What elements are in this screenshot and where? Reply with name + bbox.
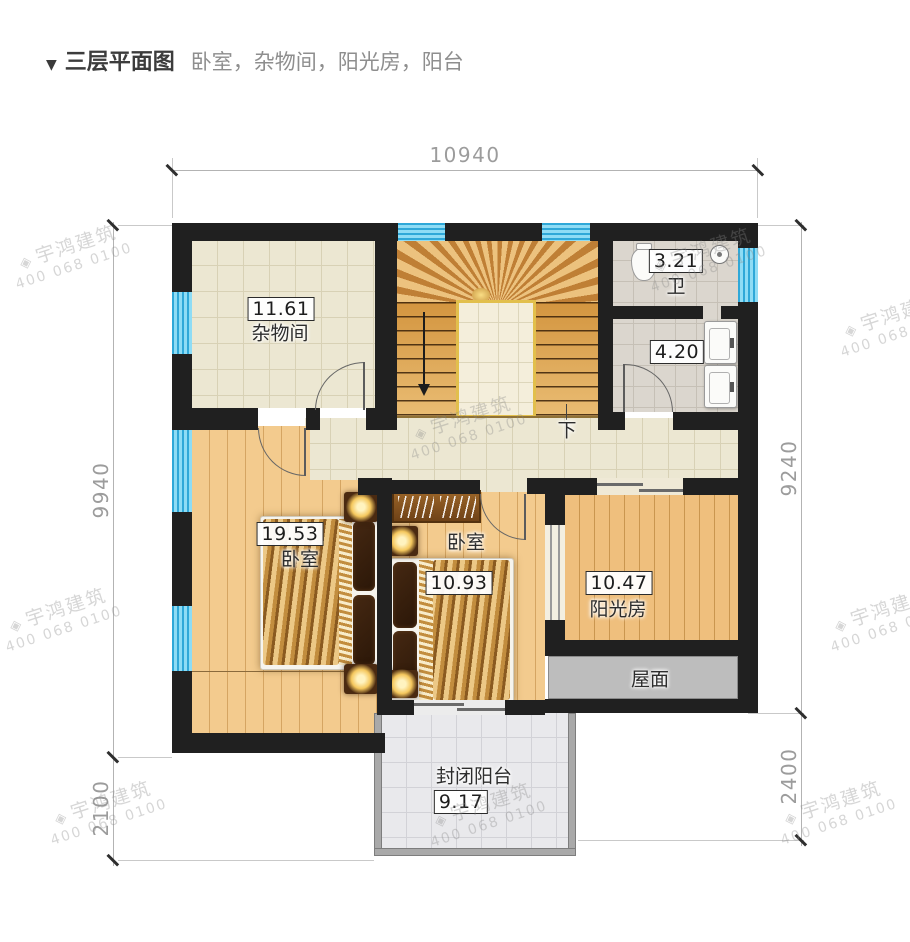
wall-between-bedrooms [377,480,392,715]
extension-line [748,713,804,714]
sink-icon [704,365,737,408]
dimension-right-lower-value: 2400 [777,748,801,805]
wall-exterior-bottom-right [545,699,758,713]
room-name-bedroom-left: 卧室 [281,545,319,572]
window-top-2 [542,223,590,241]
wall-washroom-bottom-right [673,412,758,430]
watermark-logo-icon [6,610,29,636]
door-leaf-bedroom-left [304,428,306,476]
wall-storage-bottom-right [366,408,397,430]
dimension-line-left [113,222,114,866]
watermark: 宇鸿建筑 400 068 0100 [738,760,910,860]
bed-left-pillow [353,521,375,591]
watermark-phone: 400 068 0100 [796,592,910,666]
wall-sunroom-left-upper [545,478,565,525]
wall-bathroom-left [598,240,613,412]
opening-jamb-line [558,525,560,620]
sink-basin [709,372,730,404]
watermark: 宇鸿建筑 400 068 0100 [788,567,910,667]
title-subtitle: 卧室，杂物间，阳光房，阳台 [191,46,464,76]
room-name-storage: 杂物间 [251,319,308,346]
wall-washroom-bottom-left [598,412,625,430]
sliding-door-gap-sunroom [597,478,683,495]
dimension-line-right [801,222,802,846]
title-heading: 三层平面图 [65,44,175,76]
floor-plan-canvas: ▼ 三层平面图 卧室，杂物间，阳光房，阳台 下 [0,0,910,942]
watermark-brand: 宇鸿建筑 [798,777,885,824]
wall-storage-bottom [172,408,258,430]
extension-line [118,860,374,861]
room-name-roof: 屋面 [631,665,669,692]
watermark-brand: 宇鸿建筑 [858,289,910,336]
area-label-bedroom-mid: 10.93 [426,571,493,595]
floor-drain-dot [717,252,722,257]
bed-left-pillow [353,595,375,665]
extension-line [172,158,173,218]
nightstand-lamp [346,492,376,522]
watermark: 宇鸿建筑 400 068 0100 [0,567,157,667]
wall-sunroom-bottom [545,640,758,656]
balcony-frame-bottom [374,848,576,856]
bed-left-fold [339,519,352,665]
watermark-logo-icon [831,610,854,636]
watermark-logo-icon [841,315,864,341]
watermark-phone: 400 068 0100 [746,785,910,859]
wall-bedroom-mid-bottom-left [377,700,414,715]
stairs-down-label: 下 [557,416,576,443]
dimension-top-value: 10940 [429,143,500,167]
wall-bathroom-divider [613,306,703,319]
door-leaf-storage [363,362,365,410]
watermark-phone: 400 068 0100 [0,229,167,303]
stairs-flight-right [536,302,598,418]
page-title: ▼ 三层平面图 卧室，杂物间，阳光房，阳台 [46,44,464,76]
watermark-brand: 宇鸿建筑 [23,584,110,631]
door-leaf-washroom [623,364,625,412]
sliding-door-panel [639,489,683,492]
extension-line [578,840,804,841]
dimension-right-upper-value: 9240 [777,440,801,497]
area-label-bathroom: 3.21 [649,249,703,273]
extension-line [118,225,172,226]
wardrobe-hangers-icon [398,496,434,518]
window-left-bedroom-2 [172,606,192,671]
wall-storage-bottom-stub [306,408,320,430]
extension-line [758,225,804,226]
wall-sunroom-top-right [683,478,738,495]
area-label-storage: 11.61 [248,297,315,321]
stairs-arrow-head-icon [418,384,430,396]
room-name-bathroom: 卫 [666,272,685,299]
dimension-left-lower-value: 2100 [89,780,113,837]
window-left-storage [172,292,192,354]
watermark: 宇鸿建筑 400 068 0100 [798,272,910,372]
wall-storage-right [375,240,397,430]
watermark-phone: 400 068 0100 [806,297,910,371]
wall-bedroom-mid-top-stub [527,478,545,494]
stairs-winders [397,240,598,302]
stairs-flight-left [397,302,456,418]
area-label-washroom: 4.20 [650,340,704,364]
area-label-balcony: 9.17 [434,790,488,814]
wall-bedroom-mid-bottom-right [505,700,545,715]
watermark-brand: 宇鸿建筑 [848,584,910,631]
watermark-brand: 宇鸿建筑 [33,221,120,268]
wardrobe [392,490,481,523]
wall-bathroom-divider-stub [721,306,738,319]
dimension-left-upper-value: 9940 [89,462,113,519]
sink-basin [709,328,730,360]
window-top-1 [398,223,445,241]
stair-void [456,300,536,418]
window-right-bathroom [738,248,758,302]
wall-bedroom-mid-top [392,480,480,494]
stairs-arrow-line [423,312,425,386]
sink-icon [704,321,737,364]
sink-faucet-icon [730,382,734,392]
sink-faucet-icon [730,338,734,348]
room-name-bedroom-mid: 卧室 [447,528,485,555]
watermark-logo-icon [51,803,74,829]
nightstand-lamp [346,664,376,694]
opening-bedroom-sunroom [545,525,565,620]
door-leaf-bedroom-mid [524,494,526,540]
room-name-sunroom: 阳光房 [589,595,646,622]
wall-exterior-top [172,223,758,241]
area-label-bedroom-left: 19.53 [257,522,324,546]
wall-bedroom-left-bottom [172,733,385,753]
sliding-door-panel [597,483,643,486]
title-triangle-icon: ▼ [46,57,57,73]
room-name-balcony: 封闭阳台 [436,762,512,789]
watermark-logo-icon [16,247,39,273]
opening-jamb-line [550,525,552,620]
balcony-frame-right [568,713,576,856]
wardrobe-hangers-icon [440,496,476,518]
dimension-line-top [172,170,758,171]
window-left-bedroom-1 [172,430,192,512]
watermark: 宇鸿建筑 400 068 0100 [0,204,167,304]
sliding-door-panel [414,703,464,706]
area-label-sunroom: 10.47 [586,571,653,595]
bed-mid-pillow [393,562,417,628]
extension-line [118,757,172,758]
sliding-door-panel [457,708,505,711]
watermark-phone: 400 068 0100 [0,592,157,666]
